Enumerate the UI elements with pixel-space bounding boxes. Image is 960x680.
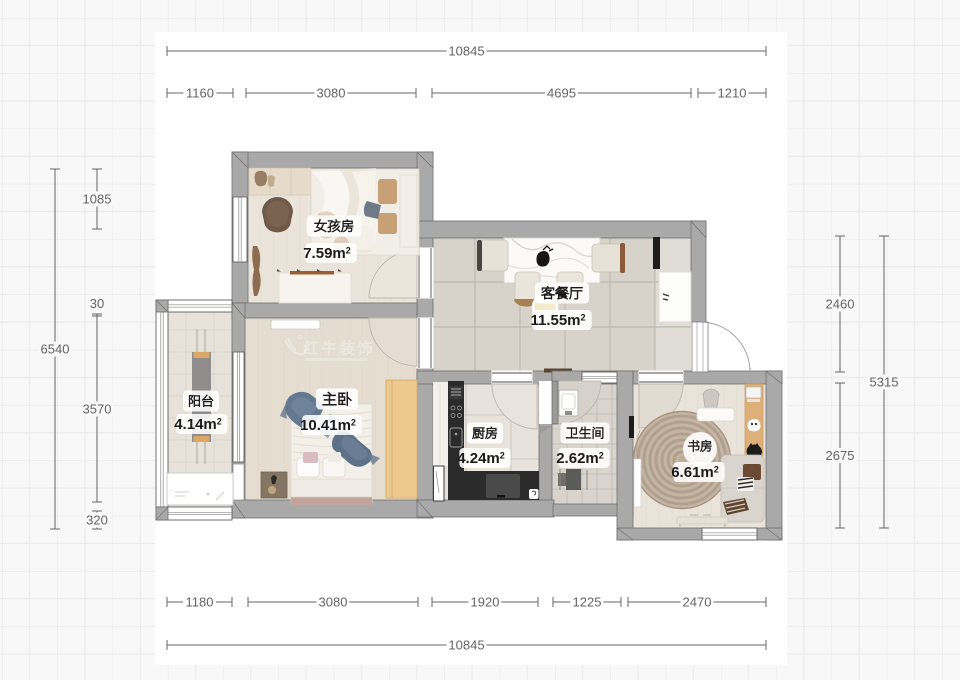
svg-text:4.14m2: 4.14m2: [174, 416, 222, 433]
svg-text:10845: 10845: [448, 44, 484, 59]
svg-text:1920: 1920: [471, 595, 500, 610]
svg-text:6.61m2: 6.61m2: [671, 464, 719, 481]
svg-text:2.62m2: 2.62m2: [556, 450, 604, 467]
svg-text:11.55m2: 11.55m2: [530, 312, 585, 329]
svg-text:2675: 2675: [826, 448, 855, 463]
svg-text:1210: 1210: [718, 86, 747, 101]
svg-text:1085: 1085: [83, 192, 112, 207]
svg-text:10845: 10845: [448, 638, 484, 653]
svg-text:1160: 1160: [186, 86, 214, 101]
svg-text:10.41m2: 10.41m2: [300, 417, 356, 434]
svg-text:1180: 1180: [186, 595, 214, 610]
svg-text:3080: 3080: [319, 595, 348, 610]
svg-text:320: 320: [86, 513, 108, 528]
svg-text:4.24m2: 4.24m2: [457, 450, 505, 467]
svg-text:2460: 2460: [826, 297, 855, 312]
svg-text:6540: 6540: [41, 342, 70, 357]
svg-text:3570: 3570: [83, 402, 112, 417]
svg-text:5315: 5315: [870, 375, 899, 390]
svg-text:7.59m2: 7.59m2: [303, 245, 351, 262]
svg-text:30: 30: [90, 296, 104, 311]
svg-text:4695: 4695: [547, 86, 576, 101]
svg-text:3080: 3080: [317, 86, 346, 101]
svg-text:1225: 1225: [573, 595, 602, 610]
svg-text:2470: 2470: [683, 595, 712, 610]
